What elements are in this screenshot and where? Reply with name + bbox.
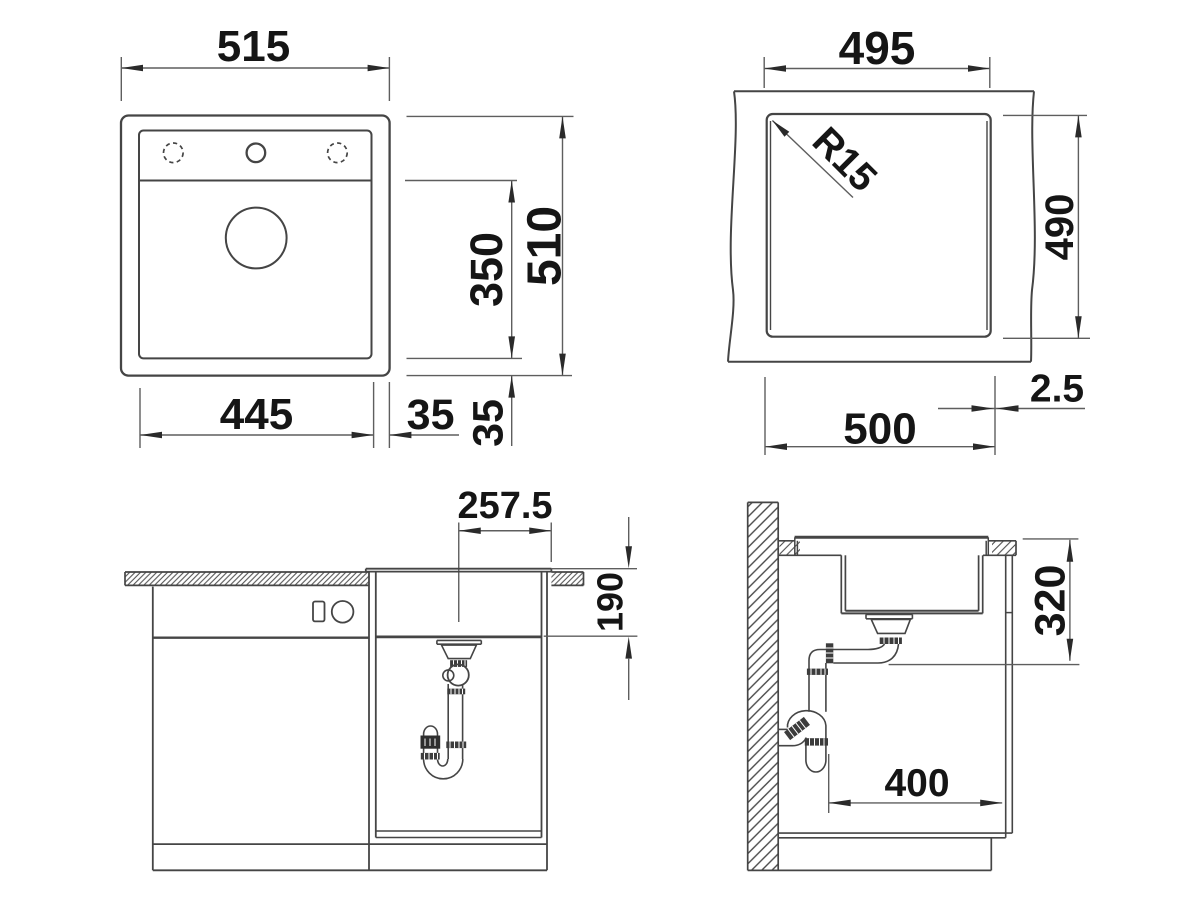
svg-text:257.5: 257.5 [457,485,552,527]
svg-text:35: 35 [465,399,513,447]
svg-text:515: 515 [217,22,290,71]
svg-text:500: 500 [843,405,916,454]
svg-text:400: 400 [884,762,949,805]
svg-text:495: 495 [839,22,916,74]
svg-text:350: 350 [461,232,512,307]
svg-text:35: 35 [407,391,455,439]
svg-text:2.5: 2.5 [1030,368,1084,411]
svg-text:190: 190 [589,572,630,632]
svg-text:510: 510 [519,206,572,286]
svg-text:320: 320 [1027,565,1075,637]
svg-text:490: 490 [1038,194,1082,261]
svg-text:445: 445 [220,390,293,439]
